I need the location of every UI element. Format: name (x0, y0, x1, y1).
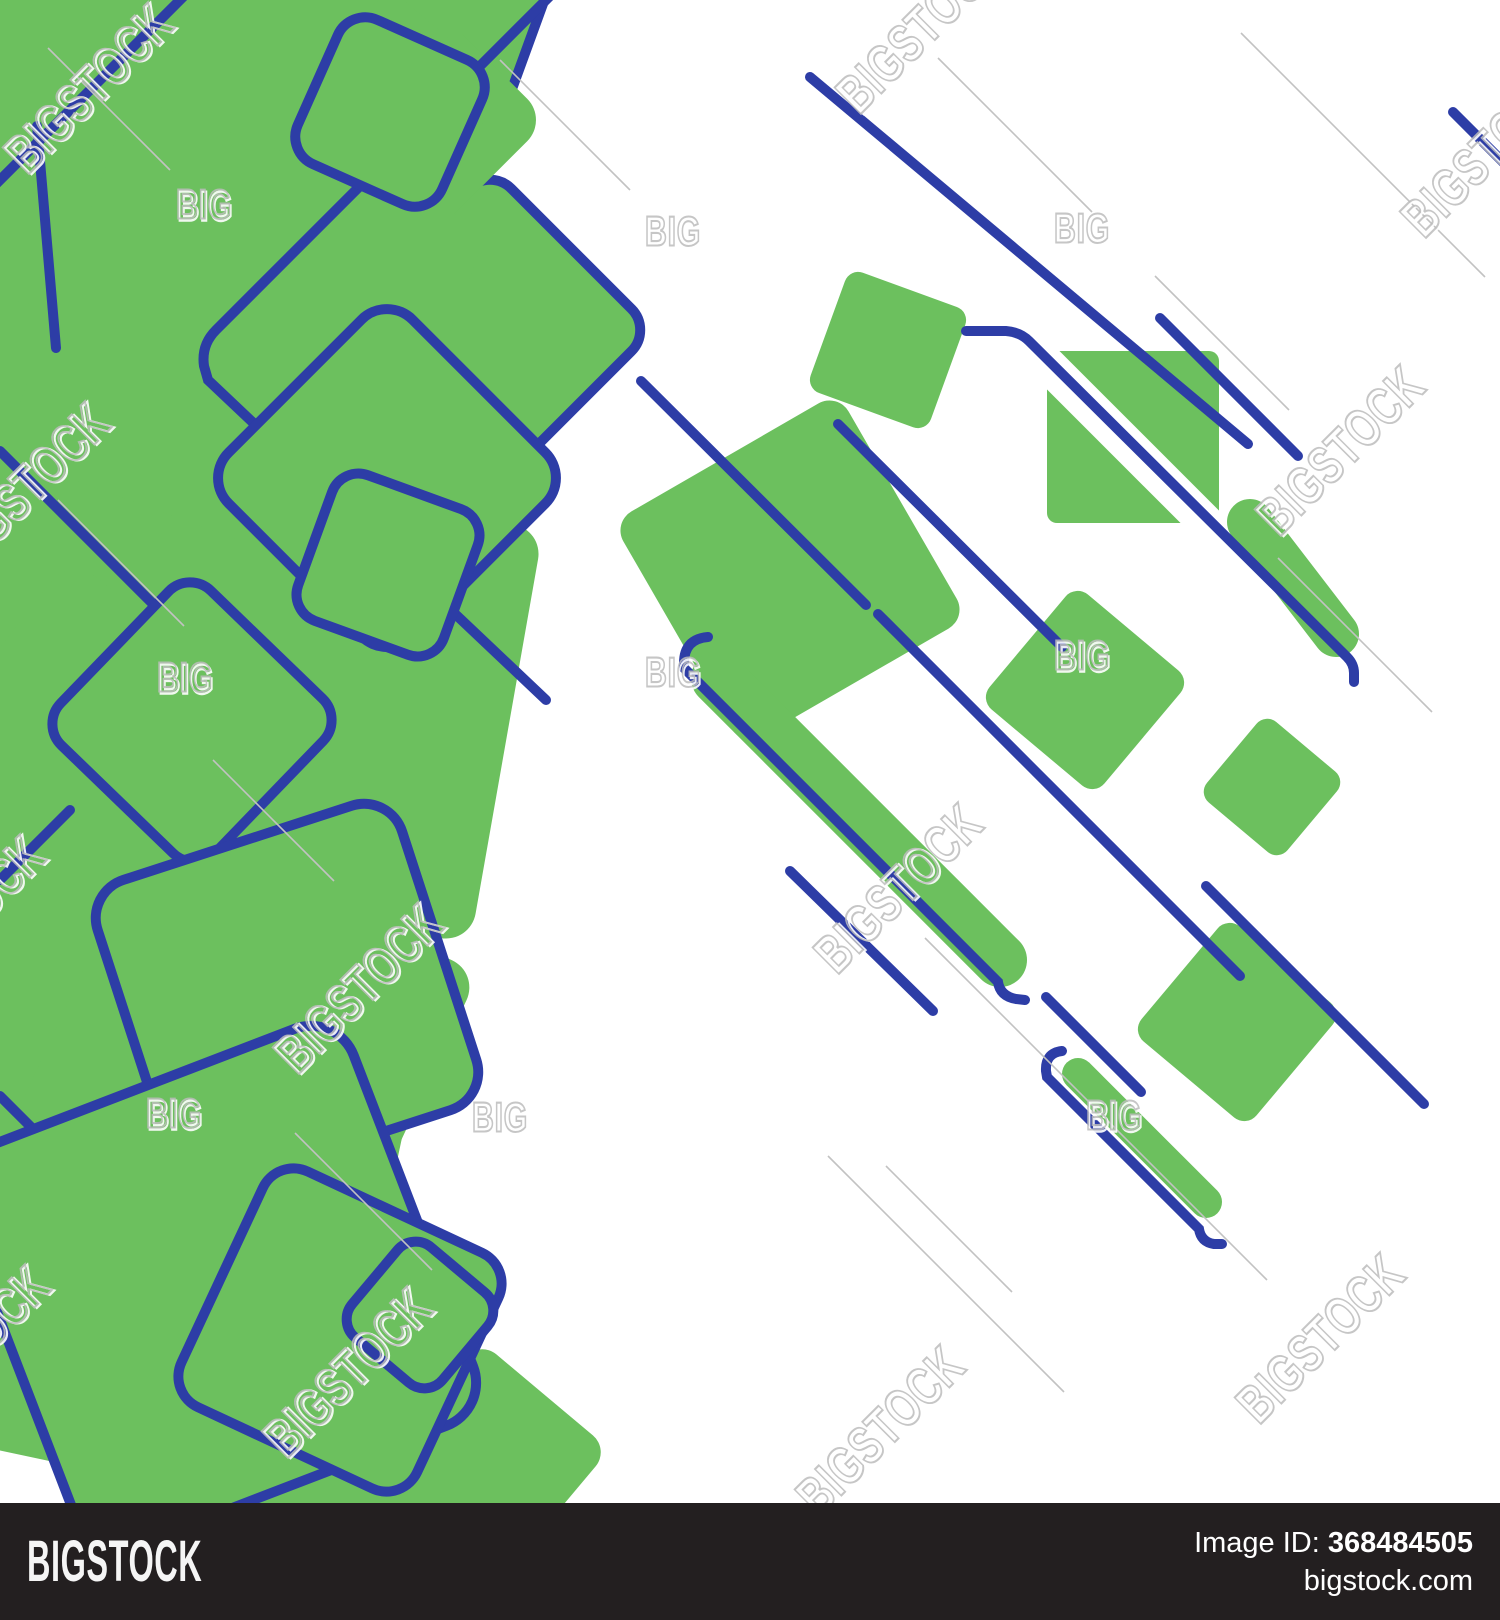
image-id-line: Image ID: 368484505 (1194, 1524, 1473, 1562)
watermark-big: BIG (1086, 1091, 1142, 1138)
watermark-big: BIG (472, 1093, 528, 1140)
green-square-fill (979, 584, 1190, 795)
stock-image-preview-page: BIGSTOCKBIGSTOCKBIGSTOCKBIGSTOCKBIGSTOCK… (0, 0, 1500, 1620)
image-id-value: 368484505 (1328, 1527, 1473, 1559)
image-meta: Image ID: 368484505 bigstock.com (1194, 1524, 1473, 1600)
watermark-tile-line (1278, 558, 1432, 712)
site-link[interactable]: bigstock.com (1194, 1562, 1473, 1600)
bigstock-logo: BIGSTOCK (27, 1528, 202, 1595)
watermark-word: BIGSTOCK (824, 0, 1016, 124)
watermark-big: BIG (645, 207, 701, 254)
watermark-word: BIGSTOCK (1389, 56, 1500, 248)
watermark-tile-line (886, 1166, 1012, 1292)
watermark-tile-line (938, 58, 1092, 212)
abstract-artwork: BIGSTOCKBIGSTOCKBIGSTOCKBIGSTOCKBIGSTOCK… (0, 0, 1500, 1503)
green-square-fill (1198, 713, 1346, 861)
watermark-word: BIGSTOCK (1244, 354, 1436, 546)
watermark-big: BIG (1054, 204, 1110, 251)
watermark-big: BIG (146, 1089, 202, 1136)
watermark-big: BIG (176, 180, 232, 227)
watermark-big: BIG (1054, 631, 1110, 678)
watermark-big: BIG (645, 648, 701, 695)
watermark-big: BIG (157, 653, 213, 700)
footer-bar: BIGSTOCK Image ID: 368484505 bigstock.co… (0, 1503, 1500, 1620)
watermark-word: BIGSTOCK (784, 1334, 976, 1503)
green-square-fill (1131, 916, 1342, 1127)
image-id-label: Image ID: (1194, 1527, 1320, 1559)
watermark-word: BIGSTOCK (1224, 1242, 1416, 1434)
